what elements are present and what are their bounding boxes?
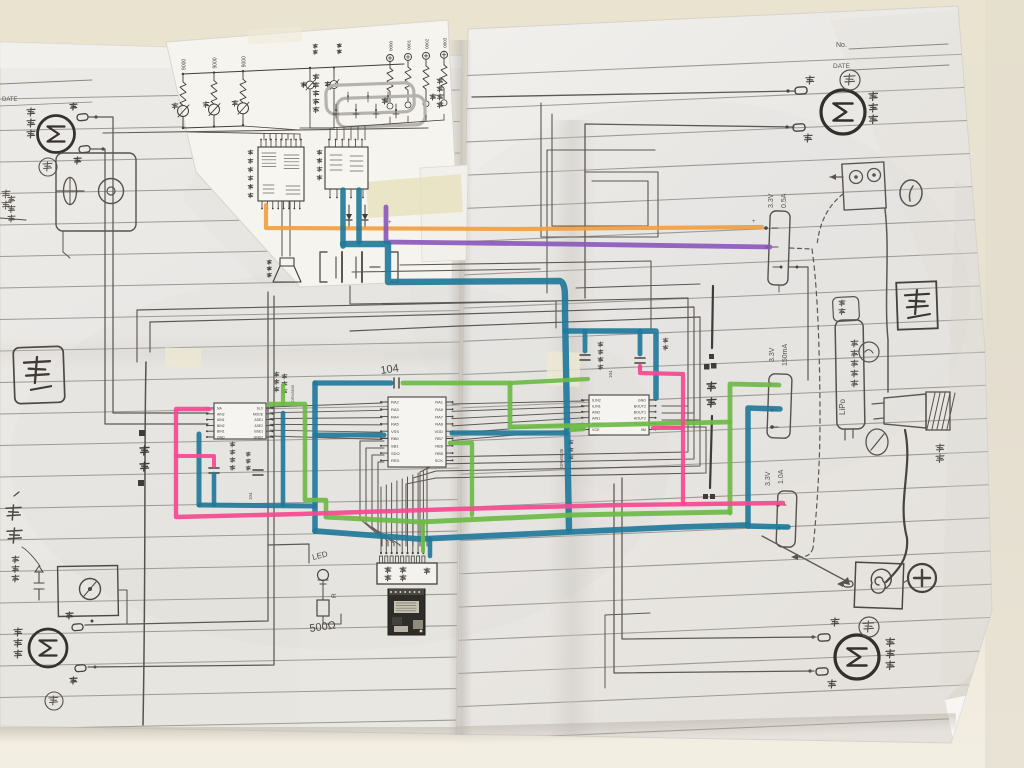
svg-text:AOUT2: AOUT2 [634, 416, 646, 420]
svg-text:BSE1: BSE1 [254, 430, 263, 434]
svg-text:+: + [388, 220, 392, 226]
svg-text:AIN1: AIN1 [217, 418, 225, 422]
svg-text:AIN1: AIN1 [592, 416, 600, 420]
svg-text:ilM: ilM [641, 428, 646, 432]
svg-text:RA3: RA3 [391, 407, 400, 412]
svg-text:ILIN2: ILIN2 [592, 399, 601, 403]
svg-text:RA1: RA1 [435, 400, 444, 405]
svg-text:104: 104 [608, 370, 613, 378]
svg-text:No.: No. [836, 42, 847, 49]
svg-text:SB1: SB1 [391, 444, 399, 449]
svg-text:+: + [752, 219, 756, 225]
svg-text:9000: 9000 [242, 56, 248, 67]
svg-text:AIN2: AIN2 [217, 412, 225, 416]
svg-text:RA2: RA2 [391, 400, 400, 405]
svg-text:DRV8835: DRV8835 [290, 384, 295, 402]
svg-text:RA4: RA4 [391, 414, 400, 419]
svg-text:1.0A: 1.0A [778, 469, 785, 484]
svg-text:0001: 0001 [407, 39, 412, 50]
svg-text:GND: GND [638, 399, 647, 403]
svg-text:RED: RED [391, 458, 400, 463]
svg-text:MODE: MODE [253, 412, 264, 416]
svg-text:150mA: 150mA [782, 343, 789, 366]
svg-text:RB5: RB5 [435, 451, 444, 456]
svg-text:3.3V: 3.3V [765, 471, 772, 486]
svg-text:BOUT2: BOUT2 [634, 405, 646, 409]
svg-text:RA5: RA5 [391, 422, 400, 427]
svg-text:RA0: RA0 [435, 407, 444, 412]
svg-text:LiPo: LiPo [838, 398, 847, 415]
svg-text:RA6: RA6 [435, 422, 444, 427]
svg-text:VDD: VDD [435, 429, 444, 434]
svg-text:BIN2: BIN2 [217, 424, 225, 428]
svg-text:104: 104 [380, 363, 400, 377]
svg-text:3.3V: 3.3V [769, 347, 776, 362]
svg-text:3.3V: 3.3V [768, 193, 775, 208]
svg-text:9000: 9000 [182, 59, 188, 70]
svg-text:VSS: VSS [391, 429, 399, 434]
svg-text:ASE2: ASE2 [254, 424, 263, 428]
svg-text:0.5A: 0.5A [781, 193, 788, 208]
svg-text:DRV8835: DRV8835 [559, 448, 564, 468]
svg-text:VCE: VCE [592, 428, 600, 432]
svg-text:0002: 0002 [425, 38, 430, 49]
svg-text:SCK: SCK [435, 458, 444, 463]
svg-text:SLX: SLX [257, 407, 264, 411]
svg-text:GND2: GND2 [254, 436, 264, 440]
svg-text:SDO: SDO [391, 451, 400, 456]
svg-text:0000: 0000 [389, 40, 394, 51]
svg-text:ASE1: ASE1 [254, 418, 263, 422]
svg-text:DATE: DATE [833, 63, 851, 70]
svg-text:0003: 0003 [443, 37, 448, 48]
svg-text:DATE: DATE [2, 97, 18, 103]
svg-text:GND: GND [217, 436, 225, 440]
svg-text:104: 104 [248, 492, 253, 500]
svg-text:RB7: RB7 [435, 436, 444, 441]
svg-text:BOUT1: BOUT1 [634, 410, 646, 414]
svg-text:RA7: RA7 [435, 414, 444, 419]
svg-text:NA: NA [217, 407, 222, 411]
svg-text:AIN2: AIN2 [592, 410, 600, 414]
svg-text:9000: 9000 [213, 57, 219, 68]
svg-text:RB6: RB6 [435, 444, 444, 449]
svg-text:ILIN1: ILIN1 [592, 405, 601, 409]
svg-text:RB0: RB0 [391, 436, 400, 441]
svg-text:R: R [331, 593, 338, 598]
svg-text:BIN1: BIN1 [217, 430, 225, 434]
